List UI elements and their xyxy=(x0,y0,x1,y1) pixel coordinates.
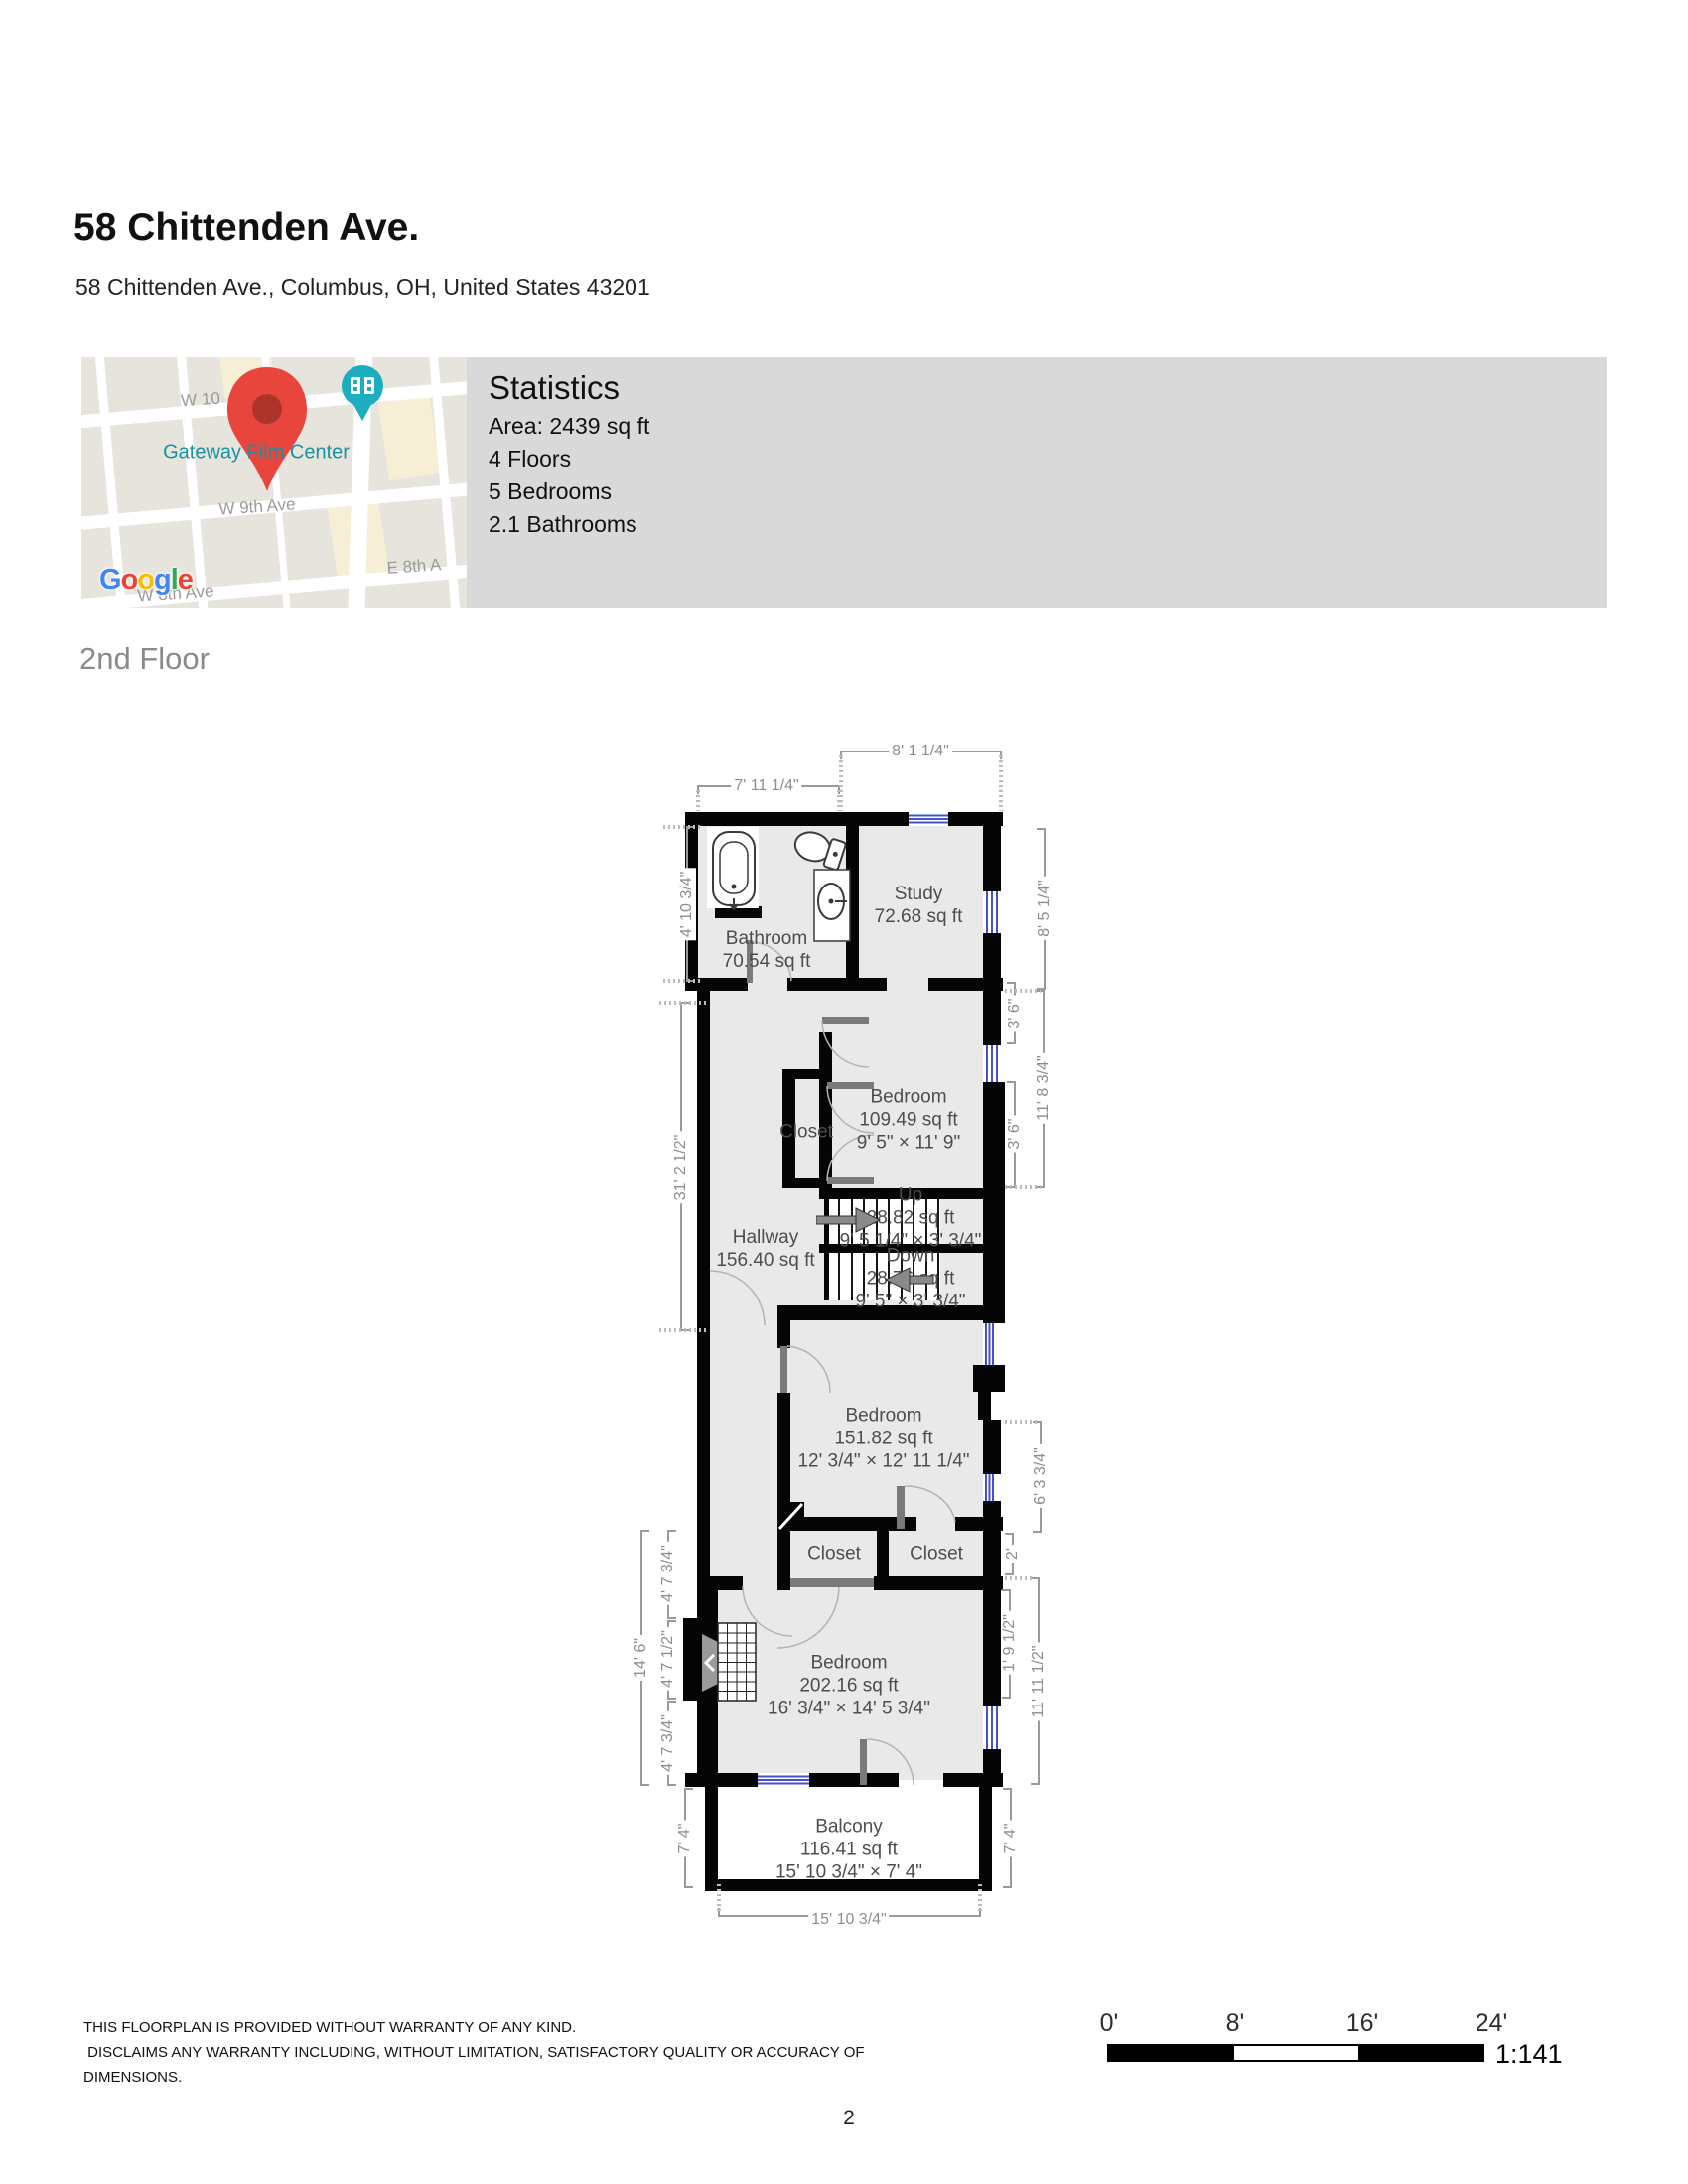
dimension-label: 7' 4" xyxy=(676,1821,694,1857)
dimension-label: 7' 4" xyxy=(1002,1821,1020,1857)
room-label-bedroom-1: Bedroom 109.49 sq ft 9' 5" × 11' 9" xyxy=(857,1086,960,1155)
dimension-label: 2' xyxy=(1004,1545,1022,1563)
scale-tick-label: 24' xyxy=(1476,2009,1508,2038)
dimension-label: 15' 10 3/4" xyxy=(808,1911,889,1929)
room-label-balcony: Balcony 116.41 sq ft 15' 10 3/4" × 7' 4" xyxy=(775,1816,922,1884)
room-label-closet-3: Closet xyxy=(910,1543,963,1566)
dimension-label: 31' 2 1/2" xyxy=(672,1132,690,1204)
scale-tick-label: 0' xyxy=(1100,2009,1119,2038)
scale-tick-label: 8' xyxy=(1226,2009,1245,2038)
scale-bar-segment xyxy=(1358,2046,1482,2060)
dimension-label: 4' 10 3/4" xyxy=(678,869,696,941)
bathtub-icon xyxy=(707,827,759,909)
google-logo: Google xyxy=(99,564,193,597)
room-label-bathroom: Bathroom 70.54 sq ft xyxy=(723,927,811,973)
scale-bar xyxy=(1107,2044,1484,2062)
dimension-label: 6' 3 3/4" xyxy=(1032,1444,1050,1508)
room-label-closet-1: Closet xyxy=(779,1121,833,1144)
room-label-bedroom-2: Bedroom 151.82 sq ft 12' 3/4" × 12' 11 1… xyxy=(797,1405,969,1473)
dimension-label: 11' 11 1/2" xyxy=(1030,1642,1048,1720)
stat-floors: 4 Floors xyxy=(489,446,571,473)
scale-bar-segment xyxy=(1109,2046,1234,2060)
stat-bathrooms: 2.1 Bathrooms xyxy=(489,511,637,538)
property-address: 58 Chittenden Ave., Columbus, OH, United… xyxy=(75,274,650,301)
dimension-label: 4' 7 3/4" xyxy=(659,1542,677,1605)
dimension-label: 8' 1 1/4" xyxy=(889,743,952,760)
sink-icon xyxy=(814,870,850,941)
page-title: 58 Chittenden Ave. xyxy=(73,206,419,250)
dimension-label: 4' 7 3/4" xyxy=(659,1711,677,1775)
room-label-study: Study 72.68 sq ft xyxy=(875,883,963,928)
statistics-heading: Statistics xyxy=(489,369,620,407)
map-street-label: E 8th A xyxy=(386,555,442,579)
scale-ratio: 1:141 xyxy=(1495,2039,1563,2070)
disclaimer-line: THIS FLOORPLAN IS PROVIDED WITHOUT WARRA… xyxy=(83,2019,576,2036)
dimension-label: 7' 11 1/4" xyxy=(731,777,801,795)
dimension-label: 8' 5 1/4" xyxy=(1036,877,1054,940)
dimension-label: 14' 6" xyxy=(633,1635,650,1681)
map-place-label: Gateway Film Center xyxy=(163,442,350,465)
scale-bar-segment xyxy=(1234,2046,1358,2060)
dimension-label: 3' 6" xyxy=(1006,996,1024,1032)
dimension-label: 1' 9 1/2" xyxy=(1001,1611,1019,1675)
room-label-bedroom-3: Bedroom 202.16 sq ft 16' 3/4" × 14' 5 3/… xyxy=(768,1652,930,1720)
dimension-label: 3' 6" xyxy=(1006,1116,1024,1153)
scale-tick-label: 16' xyxy=(1346,2009,1379,2038)
disclaimer-line: DISCLAIMS ANY WARRANTY INCLUDING, WITHOU… xyxy=(83,2044,865,2061)
stairs-up-arrow-icon xyxy=(816,1207,882,1238)
floor-heading: 2nd Floor xyxy=(79,641,210,677)
map-street-label: W 10 xyxy=(181,389,221,412)
statistics-panel xyxy=(467,357,1607,608)
room-label-hallway: Hallway 156.40 sq ft xyxy=(716,1226,814,1272)
room-label-closet-2: Closet xyxy=(807,1543,861,1566)
page-number: 2 xyxy=(829,2107,869,2130)
dimension-label: 4' 7 1/2" xyxy=(659,1627,677,1691)
stat-area: Area: 2439 sq ft xyxy=(489,413,649,440)
dimension-label: 11' 8 3/4" xyxy=(1035,1052,1053,1123)
stairs-down-arrow-icon xyxy=(886,1267,935,1297)
stat-bedrooms: 5 Bedrooms xyxy=(489,478,612,505)
disclaimer-line: DIMENSIONS. xyxy=(83,2069,182,2086)
floorplan-page: 58 Chittenden Ave. 58 Chittenden Ave., C… xyxy=(0,0,1688,2184)
